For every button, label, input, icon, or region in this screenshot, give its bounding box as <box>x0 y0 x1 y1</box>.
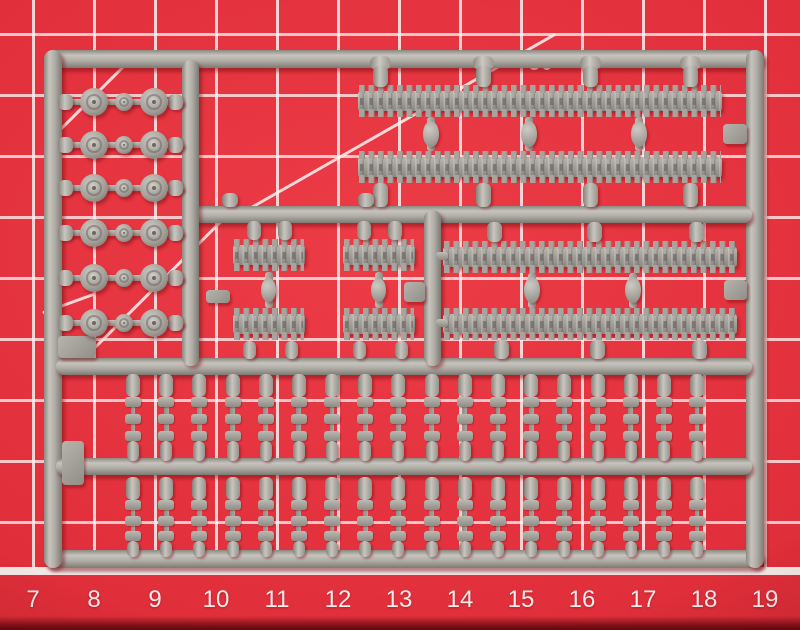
sprue-gate-pin <box>168 315 183 331</box>
sprue-gate-pin <box>492 541 504 557</box>
small-link-strip <box>390 397 406 441</box>
link-segment <box>258 414 274 424</box>
connector-pin <box>521 121 537 147</box>
sprue-gate-pin <box>159 477 173 500</box>
link-segment <box>689 500 705 510</box>
road-wheel-small <box>115 269 133 287</box>
link-segment <box>424 500 440 510</box>
track-teeth <box>234 239 304 247</box>
link-segment <box>324 431 340 441</box>
inner-rail-v1 <box>182 60 199 366</box>
road-wheel-small <box>115 314 133 332</box>
small-link-strip <box>291 397 307 441</box>
sprue-gate-pin <box>353 341 366 359</box>
link-segment <box>590 414 606 424</box>
sprue-gate-pin <box>395 341 408 359</box>
sprue-gate-pin <box>168 225 183 241</box>
link-segment <box>357 516 373 526</box>
small-link-strip <box>125 397 141 441</box>
track-guide-horns <box>345 321 413 328</box>
sprue-gate-pin <box>524 477 538 500</box>
sprue-gate-pin <box>558 541 570 557</box>
track-length-long <box>358 151 722 183</box>
sprue-gate-pin <box>690 477 704 500</box>
road-wheel-small <box>115 136 133 154</box>
road-wheel-large <box>80 88 108 116</box>
molding-tab <box>724 280 747 300</box>
frame-left-rail <box>44 50 62 568</box>
sprue-gate-pin <box>491 374 505 397</box>
link-segment <box>457 531 473 541</box>
sprue-gate-pin <box>58 94 73 110</box>
sprue-gate-pin <box>592 541 604 557</box>
sprue-gate-pin <box>358 374 372 397</box>
link-segment <box>291 397 307 407</box>
sprue-gate-pin <box>227 441 239 461</box>
link-segment <box>357 397 373 407</box>
track-teeth <box>444 308 736 316</box>
link-segment <box>225 500 241 510</box>
link-segment <box>656 516 672 526</box>
link-segment <box>324 397 340 407</box>
track-teeth <box>359 109 721 117</box>
sprue-gate-pin <box>658 441 670 461</box>
road-wheel-large <box>80 264 108 292</box>
small-link-strip <box>623 397 639 441</box>
link-segment <box>125 414 141 424</box>
link-segment <box>158 516 174 526</box>
link-segment <box>689 516 705 526</box>
link-segment <box>125 500 141 510</box>
sprue-gate-pin <box>525 541 537 557</box>
link-segment <box>656 397 672 407</box>
sprue-gate-pin <box>278 221 292 240</box>
sprue-gate-pin <box>168 94 183 110</box>
link-segment <box>590 431 606 441</box>
link-segment <box>291 431 307 441</box>
link-segment <box>191 431 207 441</box>
sprue-gate-pin <box>357 221 371 240</box>
track-length-short <box>343 239 415 271</box>
small-link-strip <box>225 500 241 541</box>
sprue-gate-pin <box>359 441 371 461</box>
small-link-strip <box>523 500 539 541</box>
sprue-gate-pin <box>487 222 502 242</box>
link-segment <box>225 397 241 407</box>
link-segment <box>225 414 241 424</box>
sprue-gate-pin <box>247 221 261 240</box>
sprue-gate-pin <box>192 477 206 500</box>
link-segment <box>590 516 606 526</box>
photo-of-model-sprue: 30 78910111213141516171819 <box>0 0 800 630</box>
cutting-mat: 30 78910111213141516171819 <box>0 0 800 630</box>
sprue-gate-pin <box>159 374 173 397</box>
sprue-gate-pin <box>624 374 638 397</box>
sprue-gate-pin <box>683 66 698 87</box>
track-teeth <box>444 265 736 273</box>
sprue-gate-pin <box>558 441 570 461</box>
small-link-strip <box>590 500 606 541</box>
sprue-gate-pin <box>657 374 671 397</box>
link-segment <box>258 531 274 541</box>
small-link-strip <box>490 500 506 541</box>
small-link-strip <box>158 397 174 441</box>
sprue-gate-pin <box>292 374 306 397</box>
track-length-long <box>443 308 737 340</box>
sprue-gate-pin <box>222 193 238 207</box>
link-segment <box>457 500 473 510</box>
track-length-short <box>233 308 305 340</box>
link-segment <box>590 397 606 407</box>
link-segment <box>390 500 406 510</box>
small-link-strip <box>258 397 274 441</box>
link-segment <box>390 431 406 441</box>
sprue-gate-pin <box>58 180 73 196</box>
sprue-gate-pin <box>168 270 183 286</box>
track-guide-horns <box>445 321 735 328</box>
sprue-gate-pin <box>591 374 605 397</box>
sprue-gate-pin <box>226 477 240 500</box>
sprue-gate-pin <box>689 222 704 242</box>
sprue-gate-pin <box>293 541 305 557</box>
sprue-gate-pin <box>58 315 73 331</box>
small-link-strip <box>324 500 340 541</box>
link-segment <box>523 431 539 441</box>
link-segment <box>291 414 307 424</box>
sprue-gate-pin <box>624 477 638 500</box>
sprue-gate-pin <box>285 341 298 359</box>
small-link-strip <box>457 500 473 541</box>
sprue-gate-pin <box>459 541 471 557</box>
link-segment <box>390 531 406 541</box>
sprue-gate-pin <box>658 541 670 557</box>
sprue-gate-pin <box>657 477 671 500</box>
small-link-strip <box>258 500 274 541</box>
sprue-gate-pin <box>293 441 305 461</box>
road-wheel-large <box>140 309 168 337</box>
link-segment <box>158 397 174 407</box>
connector-pin <box>261 278 276 302</box>
small-link-strip <box>689 397 705 441</box>
link-segment <box>556 414 572 424</box>
link-segment <box>324 516 340 526</box>
sprue-gate-pin <box>325 477 339 500</box>
sprue-gate-pin <box>625 541 637 557</box>
molding-tab <box>723 124 747 144</box>
sprue-gate-pin <box>692 340 707 359</box>
sprue-gate-pin <box>193 441 205 461</box>
track-teeth <box>344 263 414 271</box>
link-segment <box>523 531 539 541</box>
sprue-gate-pin <box>491 477 505 500</box>
road-wheel-large <box>140 219 168 247</box>
link-segment <box>689 431 705 441</box>
road-wheel-small <box>115 224 133 242</box>
molding-tab <box>62 441 84 485</box>
frame-bottom-rail <box>44 550 764 568</box>
link-segment <box>158 431 174 441</box>
sprue-gate-pin <box>458 374 472 397</box>
track-teeth <box>359 151 721 159</box>
sprue-gate-pin <box>373 183 388 207</box>
link-segment <box>357 531 373 541</box>
sprue-gate-pin <box>691 441 703 461</box>
link-segment <box>689 531 705 541</box>
sprue-gate-pin <box>127 541 139 557</box>
link-segment <box>457 431 473 441</box>
link-segment <box>590 531 606 541</box>
link-segment <box>457 414 473 424</box>
track-teeth <box>344 239 414 247</box>
link-segment <box>191 531 207 541</box>
plastic-sprue <box>0 0 800 630</box>
link-segment <box>225 431 241 441</box>
link-segment <box>125 397 141 407</box>
molding-tab <box>58 336 96 358</box>
small-link-strip <box>556 500 572 541</box>
link-segment <box>291 516 307 526</box>
sprue-gate-pin <box>259 374 273 397</box>
link-segment <box>158 500 174 510</box>
sprue-gate-pin <box>583 66 598 87</box>
link-segment <box>424 431 440 441</box>
link-segment <box>191 500 207 510</box>
sprue-gate-pin <box>392 541 404 557</box>
sprue-gate-pin <box>126 477 140 500</box>
track-teeth <box>234 308 304 316</box>
track-guide-horns <box>235 252 303 259</box>
link-segment <box>125 531 141 541</box>
sprue-gate-pin <box>260 441 272 461</box>
sprue-gate-pin <box>326 441 338 461</box>
link-segment <box>125 431 141 441</box>
link-segment <box>390 414 406 424</box>
link-segment <box>424 531 440 541</box>
sprue-gate-pin <box>525 441 537 461</box>
sprue-gate-pin <box>592 441 604 461</box>
connector-pin <box>423 121 439 147</box>
sprue-gate-pin <box>557 374 571 397</box>
sprue-gate-pin <box>476 66 491 87</box>
sprue-gate-pin <box>58 270 73 286</box>
link-segment <box>457 397 473 407</box>
small-link-strip <box>424 500 440 541</box>
track-guide-horns <box>345 252 413 259</box>
link-segment <box>523 414 539 424</box>
track-connector <box>436 252 448 260</box>
road-wheel-large <box>140 174 168 202</box>
sprue-gate-pin <box>391 374 405 397</box>
link-segment <box>623 516 639 526</box>
sprue-gate-pin <box>168 137 183 153</box>
link-segment <box>656 431 672 441</box>
link-segment <box>125 516 141 526</box>
small-link-strip <box>689 500 705 541</box>
sprue-gate-pin <box>259 477 273 500</box>
small-link-strip <box>523 397 539 441</box>
link-segment <box>191 414 207 424</box>
sprue-gate-pin <box>292 477 306 500</box>
sprue-gate-pin <box>426 441 438 461</box>
small-link-strip <box>656 500 672 541</box>
link-segment <box>623 500 639 510</box>
sprue-gate-pin <box>243 341 256 359</box>
link-segment <box>357 414 373 424</box>
link-segment <box>291 500 307 510</box>
track-guide-horns <box>235 321 303 328</box>
link-segment <box>556 531 572 541</box>
link-segment <box>689 397 705 407</box>
link-segment <box>623 414 639 424</box>
sprue-gate-pin <box>425 374 439 397</box>
road-wheel-large <box>140 264 168 292</box>
link-segment <box>590 500 606 510</box>
track-teeth <box>359 85 721 93</box>
small-link-strip <box>357 397 373 441</box>
frame-right-rail <box>746 50 764 568</box>
sprue-gate-pin <box>459 441 471 461</box>
link-segment <box>390 516 406 526</box>
small-link-strip <box>457 397 473 441</box>
track-teeth <box>444 241 736 249</box>
sprue-gate-pin <box>476 183 491 207</box>
link-segment <box>523 500 539 510</box>
sprue-gate-pin <box>58 137 73 153</box>
link-segment <box>556 431 572 441</box>
sprue-gate-pin <box>373 66 388 87</box>
sprue-gate-pin <box>226 374 240 397</box>
track-guide-horns <box>360 98 720 105</box>
link-segment <box>324 500 340 510</box>
track-teeth <box>359 175 721 183</box>
link-segment <box>291 531 307 541</box>
link-segment <box>258 397 274 407</box>
link-segment <box>457 516 473 526</box>
link-segment <box>490 500 506 510</box>
link-segment <box>225 516 241 526</box>
link-segment <box>158 531 174 541</box>
sprue-gate-pin <box>160 541 172 557</box>
link-segment <box>357 500 373 510</box>
sprue-gate-pin <box>494 340 509 359</box>
small-link-strip <box>291 500 307 541</box>
sprue-gate-pin <box>325 374 339 397</box>
connector-pin <box>524 277 540 303</box>
road-wheel-small <box>115 179 133 197</box>
road-wheel-large <box>80 309 108 337</box>
link-segment <box>424 516 440 526</box>
track-teeth <box>444 332 736 340</box>
sprue-gate-pin <box>326 541 338 557</box>
link-segment <box>258 500 274 510</box>
track-teeth <box>344 332 414 340</box>
sprue-gate-pin <box>524 374 538 397</box>
sprue-gate-pin <box>58 225 73 241</box>
link-segment <box>258 431 274 441</box>
small-link-strip <box>424 397 440 441</box>
small-link-strip <box>556 397 572 441</box>
road-wheel-large <box>140 131 168 159</box>
sprue-gate-pin <box>358 193 374 207</box>
link-segment <box>324 414 340 424</box>
small-link-strip <box>158 500 174 541</box>
link-segment <box>424 414 440 424</box>
inner-rail-h3 <box>56 458 752 475</box>
sprue-gate-pin <box>168 180 183 196</box>
sprue-gate-pin <box>458 477 472 500</box>
sprue-gate-pin <box>492 441 504 461</box>
road-wheel-large <box>140 88 168 116</box>
road-wheel-large <box>80 174 108 202</box>
small-link-strip <box>191 397 207 441</box>
sprue-gate-pin <box>591 477 605 500</box>
sprue-gate-pin <box>587 222 602 242</box>
link-segment <box>225 531 241 541</box>
connector-pin <box>371 278 386 302</box>
inner-rail-h2 <box>56 358 752 375</box>
connector-pin <box>625 277 641 303</box>
small-link-strip <box>225 397 241 441</box>
sprue-gate-pin <box>160 441 172 461</box>
track-length-long <box>358 85 722 117</box>
sprue-gate-pin <box>625 441 637 461</box>
small-link-strip <box>324 397 340 441</box>
link-segment <box>158 414 174 424</box>
link-segment <box>623 431 639 441</box>
mat-edge-shadow <box>0 616 800 630</box>
track-teeth <box>234 332 304 340</box>
link-segment <box>490 516 506 526</box>
frame-top-rail <box>44 50 764 68</box>
sprue-gate-pin <box>425 477 439 500</box>
sprue-gate-pin <box>359 541 371 557</box>
sprue-gate-pin <box>590 340 605 359</box>
link-segment <box>689 414 705 424</box>
link-segment <box>191 516 207 526</box>
link-segment <box>523 516 539 526</box>
small-link-strip <box>490 397 506 441</box>
inner-rail-h1 <box>188 206 752 223</box>
link-segment <box>390 397 406 407</box>
link-segment <box>556 397 572 407</box>
sprue-gate-pin <box>426 541 438 557</box>
track-guide-horns <box>360 164 720 171</box>
sprue-gate-pin <box>583 183 598 207</box>
sprue-gate-pin <box>127 441 139 461</box>
sprue-gate-pin <box>557 477 571 500</box>
road-wheel-small <box>115 93 133 111</box>
molding-tab <box>404 282 425 302</box>
link-segment <box>523 397 539 407</box>
sprue-gate-pin <box>126 374 140 397</box>
connector-pin <box>631 121 647 147</box>
small-link-strip <box>623 500 639 541</box>
sprue-gate-pin <box>358 477 372 500</box>
link-segment <box>656 531 672 541</box>
link-segment <box>490 397 506 407</box>
link-segment <box>623 531 639 541</box>
small-link-strip <box>125 500 141 541</box>
link-segment <box>656 414 672 424</box>
link-segment <box>258 516 274 526</box>
sprue-gate-pin <box>227 541 239 557</box>
link-segment <box>357 431 373 441</box>
track-length-short <box>233 239 305 271</box>
molding-tab <box>206 290 230 303</box>
inner-rail-v2 <box>424 210 441 366</box>
sprue-gate-pin <box>193 541 205 557</box>
track-length-long <box>443 241 737 273</box>
